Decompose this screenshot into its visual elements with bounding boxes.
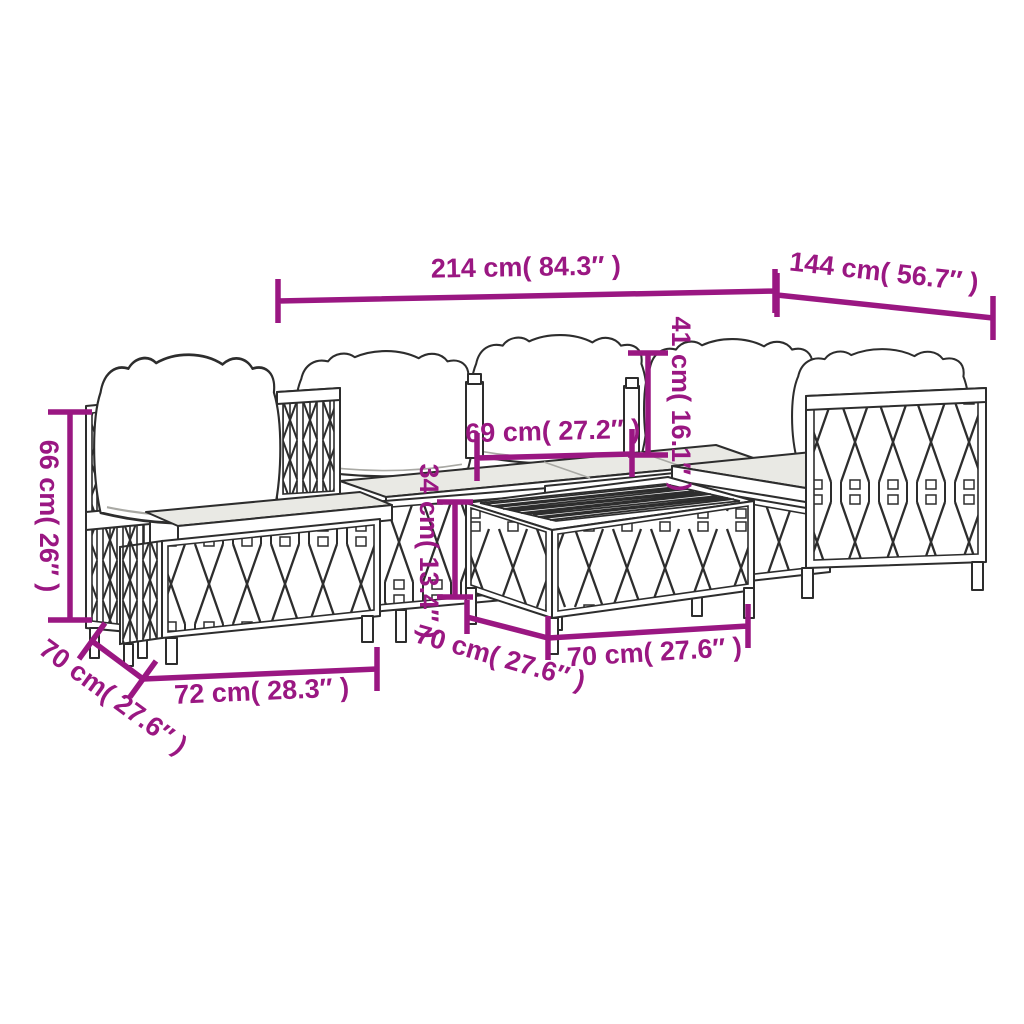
- chair-leg: [166, 638, 177, 664]
- dim-backrest-height-label: 41 cm( 16.1″ ): [666, 316, 696, 491]
- right-arm-panel: [802, 388, 986, 598]
- dim-seat-inner-width-label: 69 cm( 27.2″ ): [465, 414, 641, 449]
- dim-overall-width: 214 cm( 84.3″ ): [278, 250, 775, 323]
- sofa-leg: [802, 568, 813, 598]
- sofa-leg: [972, 562, 983, 590]
- corner-post-woven: [277, 388, 340, 500]
- dim-table-height-label: 34 cm( 13.4″ ): [414, 463, 444, 638]
- dim-back-height: 66 cm( 26″ ): [34, 412, 92, 620]
- lounge-set-diagram: 214 cm( 84.3″ ) 144 cm( 56.7″ ) 66 cm( 2…: [0, 0, 1024, 1024]
- left-chair-pillow: [94, 355, 280, 524]
- dim-overall-depth-label: 144 cm( 56.7″ ): [788, 246, 980, 297]
- dim-overall-depth: 144 cm( 56.7″ ): [777, 246, 993, 340]
- dim-overall-width-label: 214 cm( 84.3″ ): [431, 250, 622, 283]
- sofa-leg: [396, 610, 406, 642]
- left-chair-base: [120, 519, 380, 666]
- chair-leg: [362, 616, 373, 642]
- dim-chair-width: 72 cm( 28.3″ ): [143, 647, 377, 710]
- frame-post-cap: [626, 378, 638, 388]
- dim-back-height-label: 66 cm( 26″ ): [34, 440, 64, 593]
- dim-chair-width-label: 72 cm( 28.3″ ): [174, 672, 350, 710]
- frame-post-cap: [468, 374, 481, 384]
- product-dimension-diagram: 214 cm( 84.3″ ) 144 cm( 56.7″ ) 66 cm( 2…: [0, 0, 1024, 1024]
